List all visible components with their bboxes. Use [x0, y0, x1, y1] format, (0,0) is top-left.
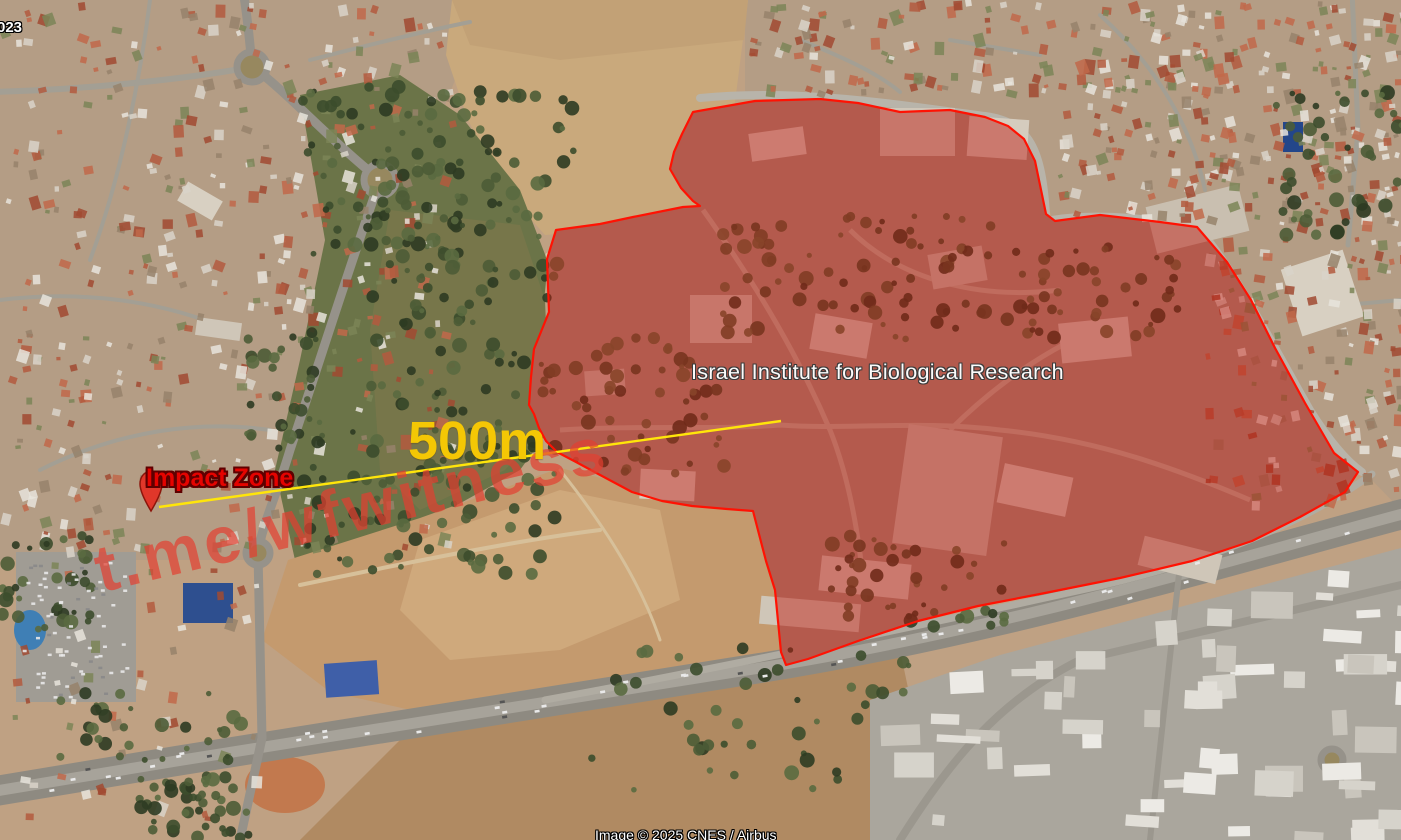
imagery-attribution: Image © 2025 CNES / Airbus [595, 828, 777, 840]
impact-zone-label: Impact Zone [146, 466, 293, 491]
satellite-view: 023 t.me/wfwitness Impact Zone 500m Isra… [0, 0, 1401, 840]
institute-name-label: Israel Institute for Biological Research [691, 362, 1064, 384]
distance-label: 500m [408, 414, 546, 468]
annotation-layer [0, 0, 1401, 840]
imagery-date-fragment: 023 [0, 20, 22, 35]
